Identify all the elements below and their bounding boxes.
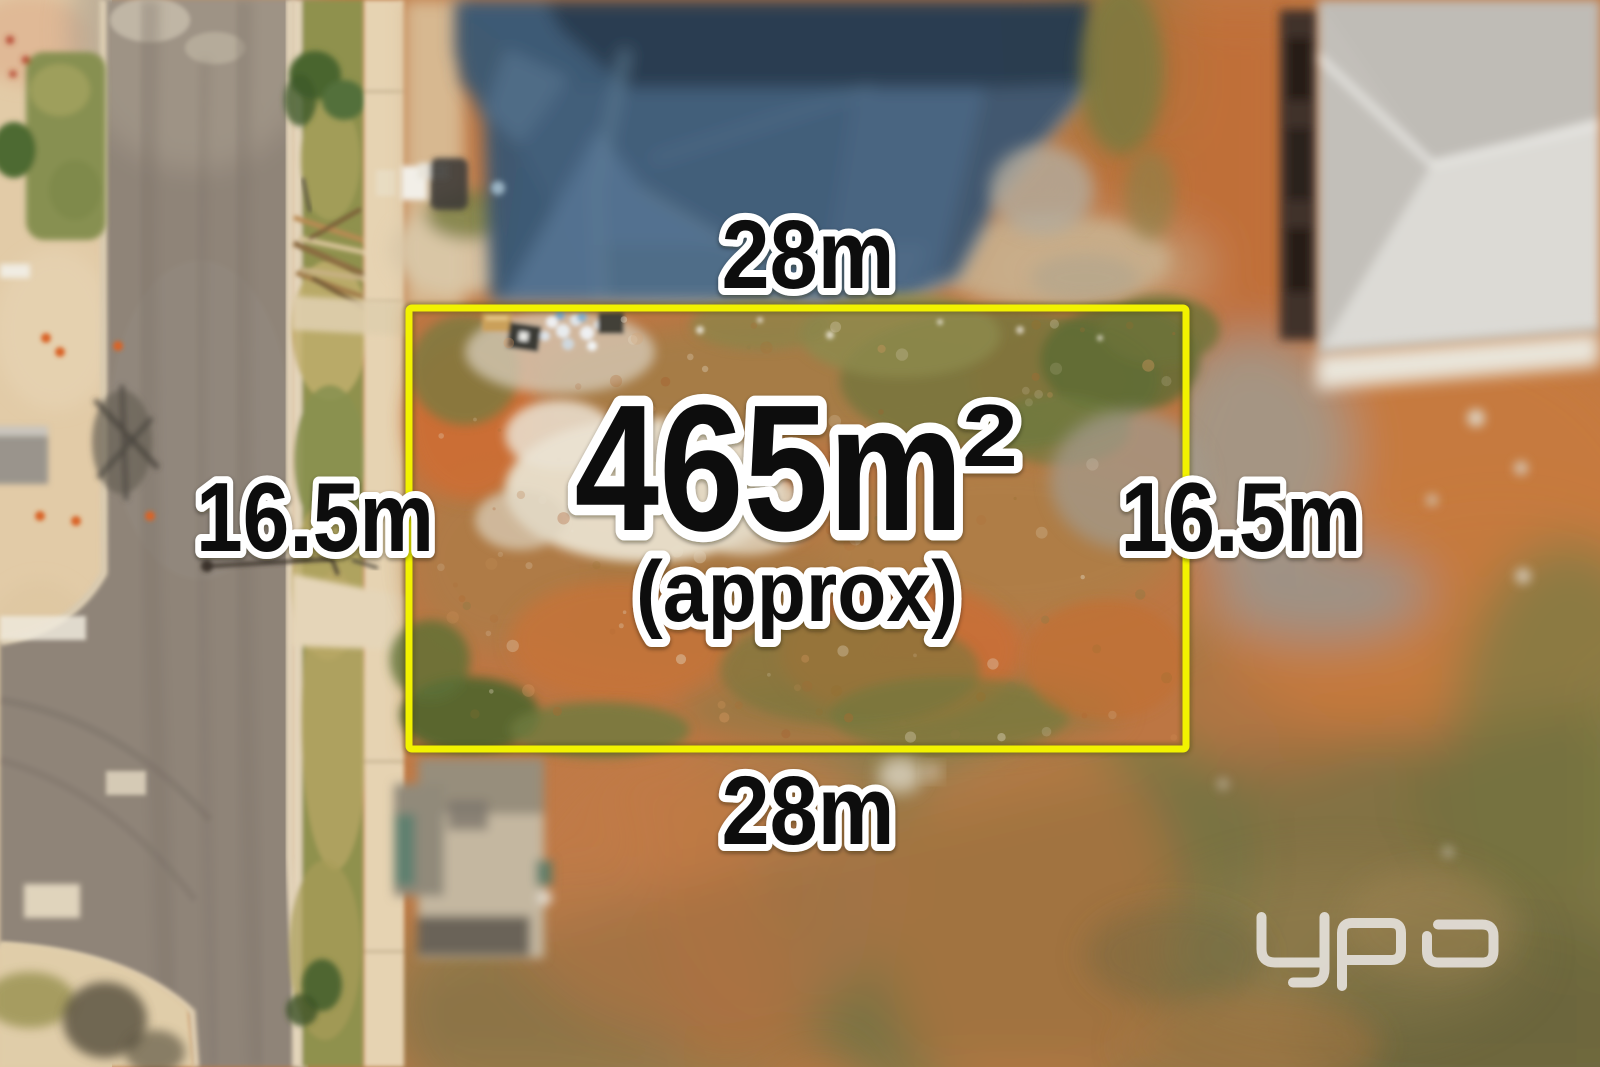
svg-text:16.5m: 16.5m: [1121, 462, 1362, 572]
svg-text:16.5m: 16.5m: [196, 462, 434, 572]
svg-text:28m: 28m: [722, 200, 895, 309]
svg-text:2: 2: [962, 386, 1018, 485]
svg-text:465m: 465m: [575, 368, 964, 569]
svg-text:28m: 28m: [722, 756, 895, 865]
svg-text:(approx): (approx): [636, 544, 958, 640]
